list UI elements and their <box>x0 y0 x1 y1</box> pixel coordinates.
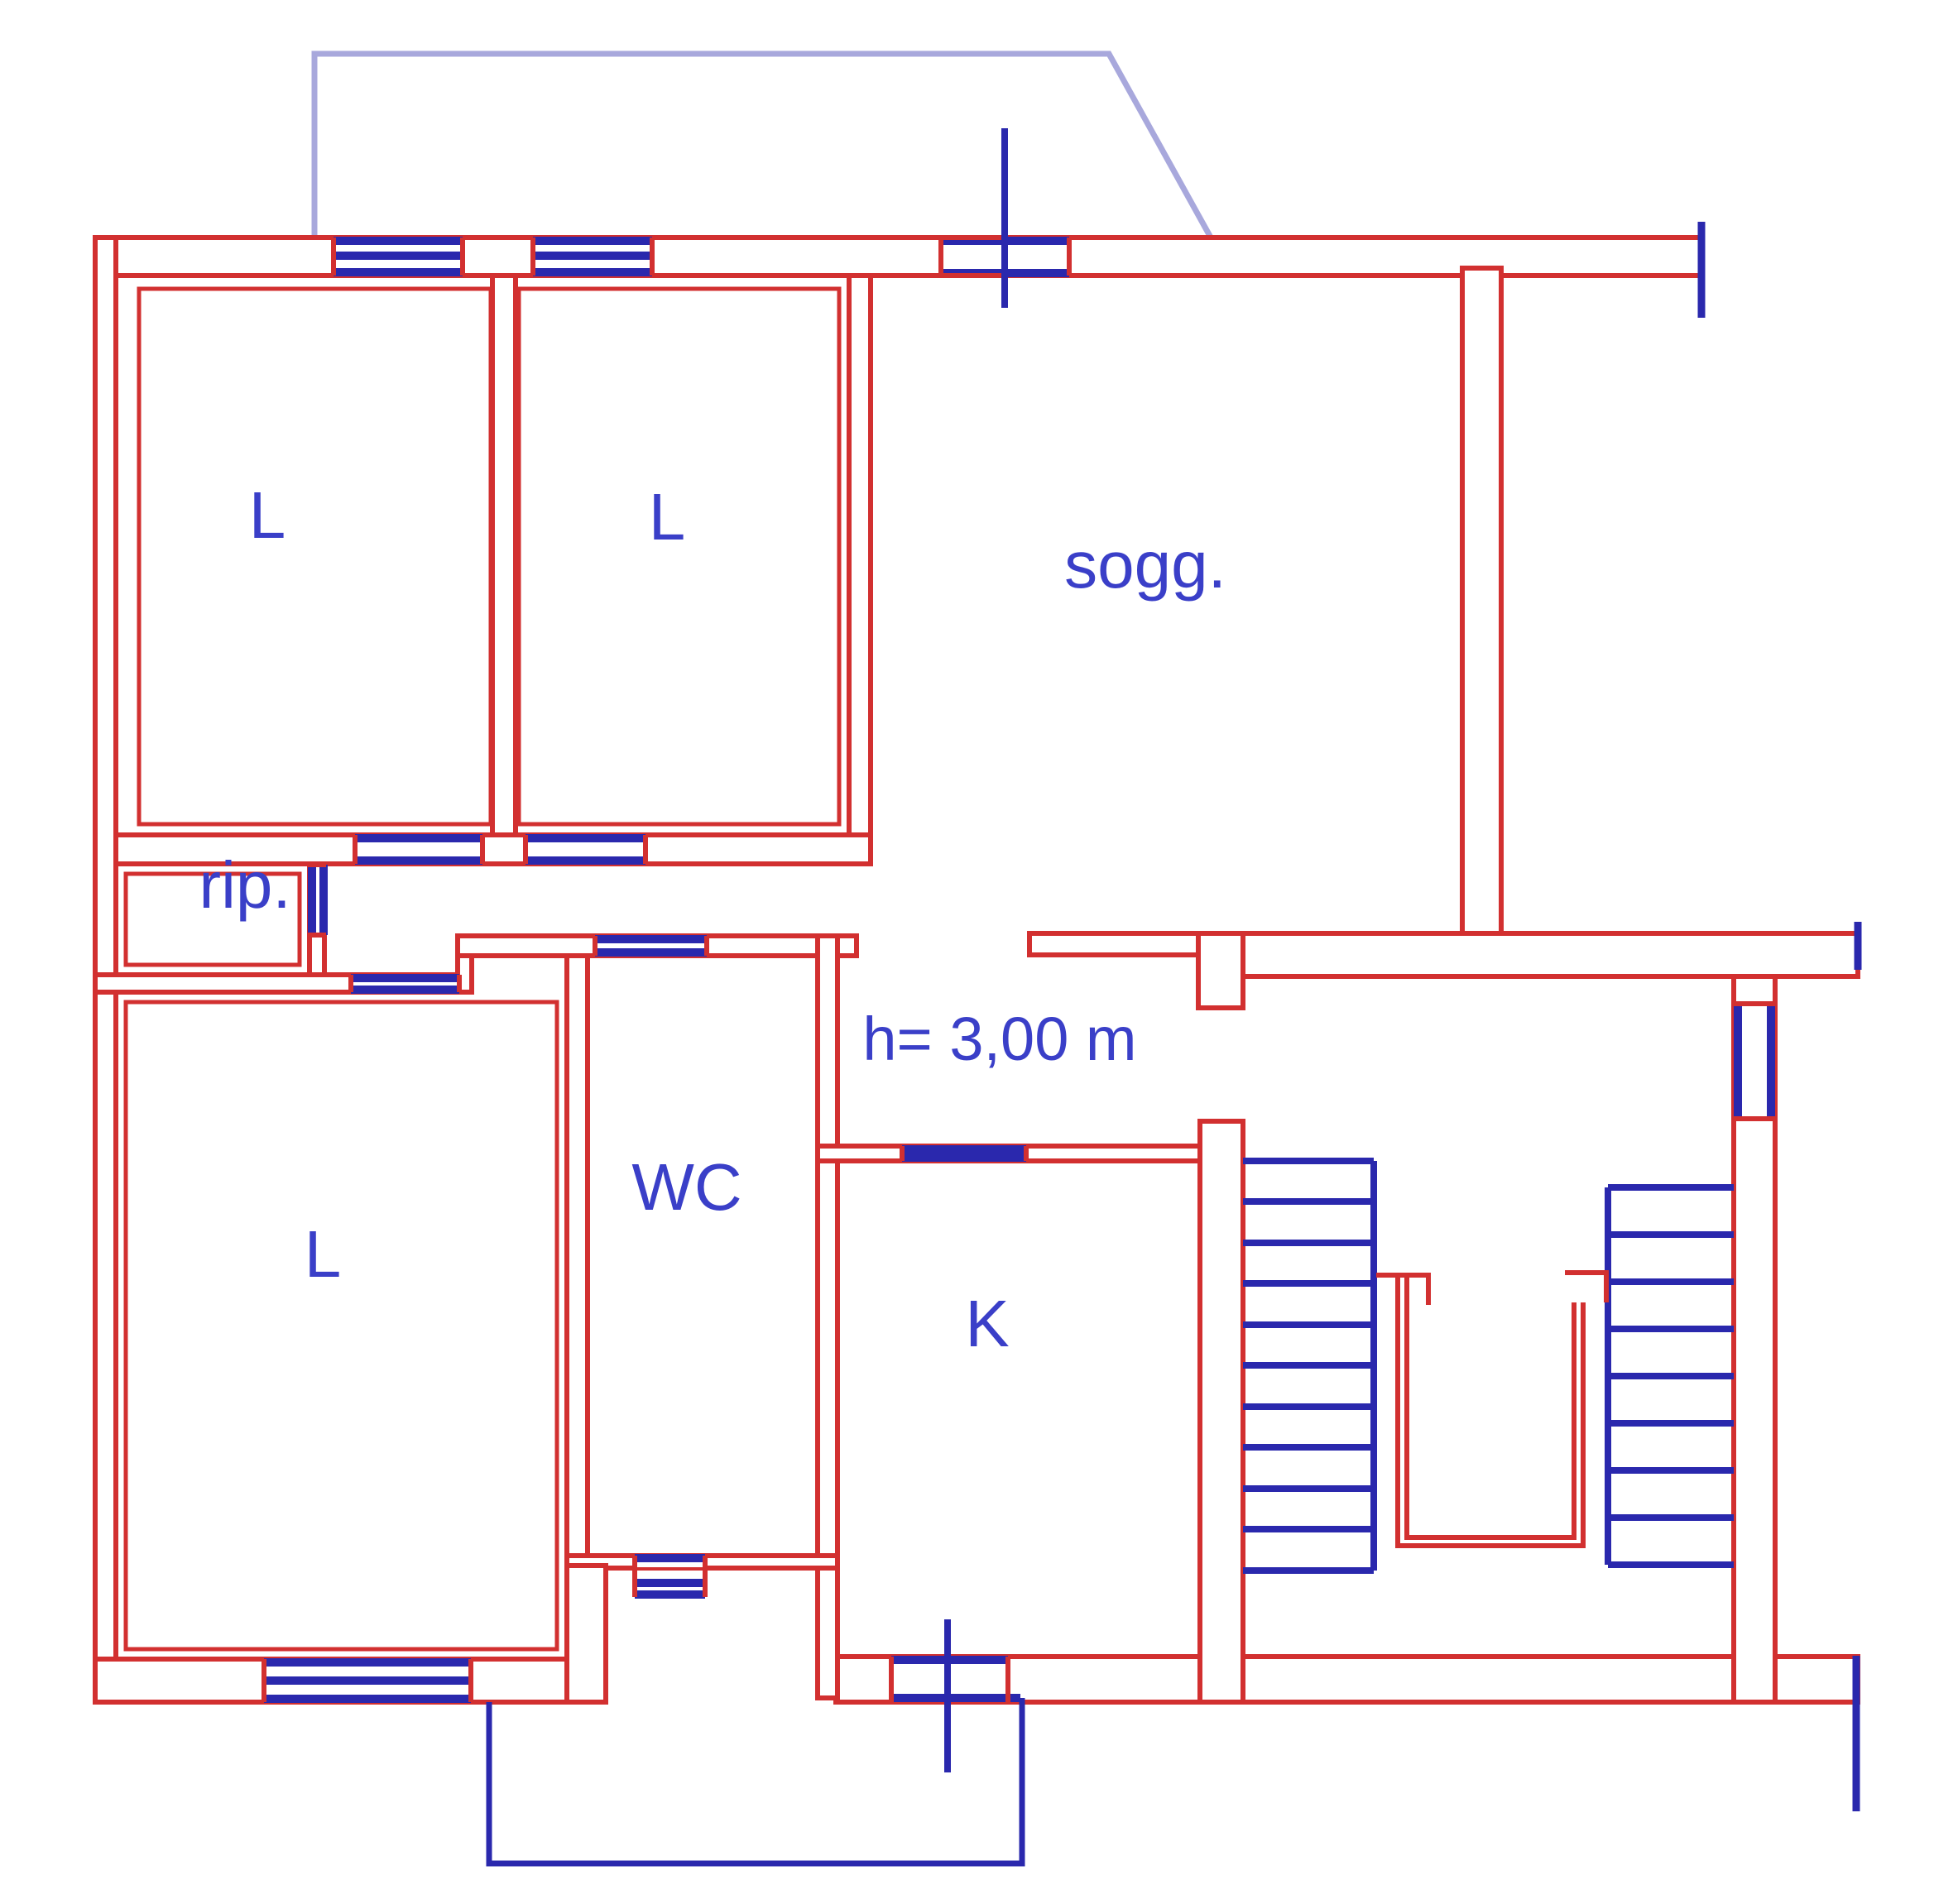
wall-living-bottom-right <box>1243 933 1858 976</box>
room-label-living: sogg. <box>1064 528 1226 602</box>
floor-plan-page: L L sogg. rip. L WC h= 3,00 m K <box>0 0 1934 1904</box>
balcony-outline <box>314 54 1211 237</box>
door-top-entry <box>941 128 1069 308</box>
floor-plan-drawing: L L sogg. rip. L WC h= 3,00 m K <box>0 0 1934 1904</box>
door-bedroom2 <box>525 835 645 864</box>
outline-bedroom2 <box>519 289 839 824</box>
stair-break-line-right <box>1565 1273 1606 1302</box>
window-top-2 <box>533 237 652 276</box>
room-label-bedroom3: L <box>305 1217 342 1291</box>
wall-bedroom1-bedroom2 <box>492 276 516 835</box>
wall-wc-left <box>567 956 588 1566</box>
wall-end-ticks <box>1701 222 1858 1811</box>
stair-core-wall <box>1376 1273 1606 1546</box>
door-storage <box>308 865 326 935</box>
room-label-wc: WC <box>631 1150 741 1224</box>
room-label-bedroom1: L <box>249 478 286 552</box>
stair-flight-right <box>1608 1187 1734 1565</box>
ceiling-height-note: h= 3,00 m <box>862 1005 1136 1073</box>
room-label-kitchen: K <box>965 1287 1009 1360</box>
window-top-1 <box>334 237 463 276</box>
wall-wc-kitchen <box>818 936 837 1698</box>
room-labels: L L sogg. rip. L WC h= 3,00 m K <box>199 478 1226 1360</box>
wall-vestibule-left <box>567 1566 606 1702</box>
stair-break-line-left <box>1376 1275 1428 1305</box>
wall-living-bottom-left <box>1029 933 1202 955</box>
door-wc-top <box>595 936 707 956</box>
door-wc-bottom <box>635 1556 705 1597</box>
wall-bedroom2-living <box>849 276 871 835</box>
window-bottom <box>264 1659 471 1702</box>
door-kitchen-top <box>902 1146 1026 1161</box>
room-outlines <box>126 289 839 1649</box>
wall-living-right <box>1462 268 1501 937</box>
wall-pillar <box>1198 933 1243 1008</box>
door-main-entrance <box>891 1619 1020 1772</box>
porch-line <box>489 1698 1022 1863</box>
porch-outline <box>489 1698 1022 1863</box>
stairwell <box>1243 1161 1734 1571</box>
wall-stairwell-left <box>1200 1121 1243 1702</box>
stair-flight-left <box>1243 1161 1374 1571</box>
wall-left <box>95 237 116 1702</box>
balcony-line <box>314 54 1211 237</box>
outline-bedroom1 <box>139 289 491 824</box>
room-label-storage: rip. <box>199 848 290 922</box>
doors <box>308 128 1069 1772</box>
door-bedroom1 <box>355 835 482 864</box>
outline-bedroom3 <box>126 1002 557 1649</box>
room-label-bedroom2: L <box>649 480 686 554</box>
door-bedroom3 <box>351 975 459 992</box>
window-stairwell-right <box>1734 1004 1775 1119</box>
